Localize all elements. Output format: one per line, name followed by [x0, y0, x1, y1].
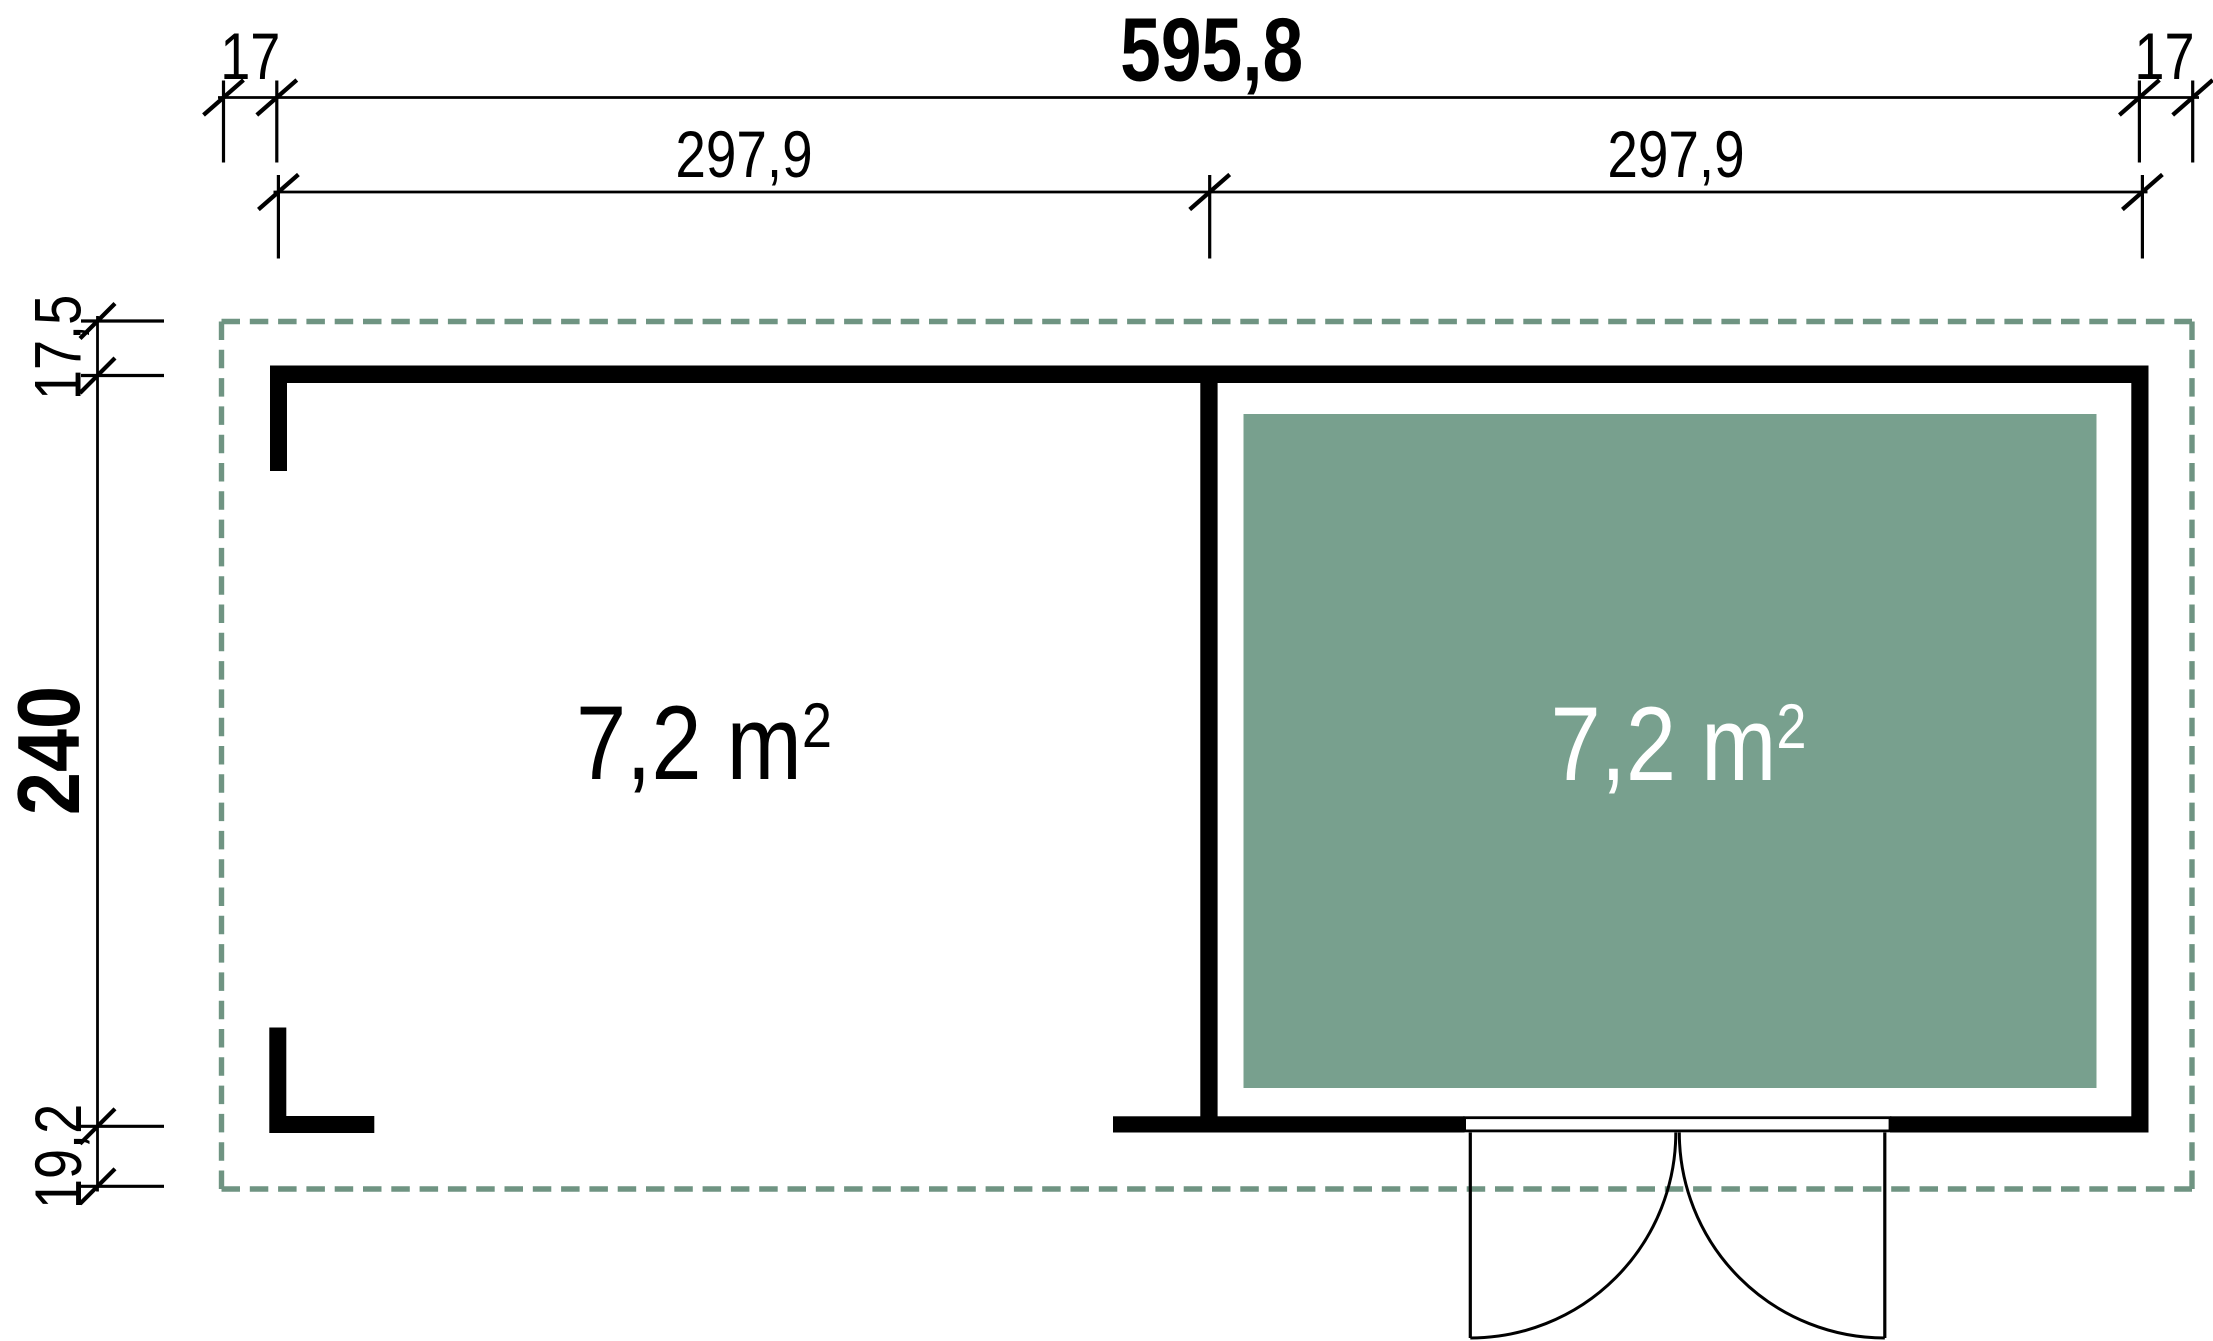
- svg-text:17: 17: [220, 19, 280, 93]
- svg-text:17: 17: [2134, 19, 2194, 93]
- svg-text:19,2: 19,2: [21, 1104, 95, 1209]
- svg-text:7,2 m2: 7,2 m2: [1551, 685, 1807, 803]
- svg-text:297,9: 297,9: [675, 117, 812, 191]
- svg-text:595,8: 595,8: [1120, 0, 1303, 100]
- svg-text:17,5: 17,5: [20, 295, 94, 400]
- svg-text:297,9: 297,9: [1607, 117, 1744, 191]
- svg-text:240: 240: [0, 686, 98, 815]
- svg-text:7,2 m2: 7,2 m2: [576, 684, 832, 802]
